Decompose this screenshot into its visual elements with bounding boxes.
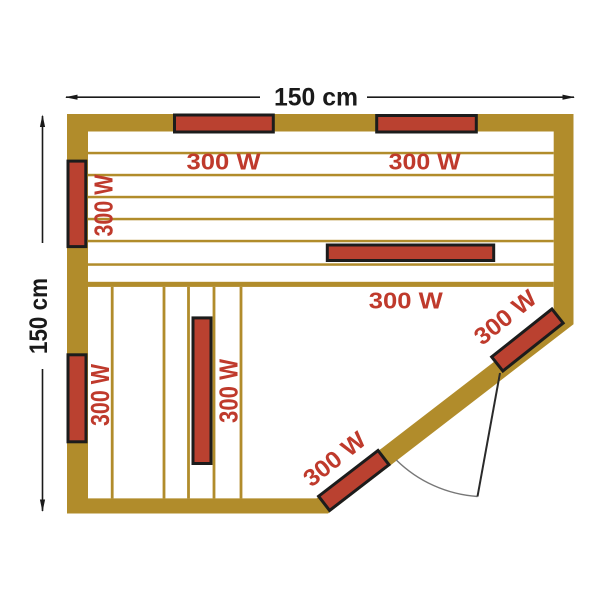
svg-text:300 W: 300 W — [89, 174, 119, 236]
svg-text:300 W: 300 W — [187, 148, 261, 174]
svg-text:150 cm: 150 cm — [274, 84, 358, 112]
svg-text:150 cm: 150 cm — [25, 278, 53, 354]
svg-text:300 W: 300 W — [369, 288, 443, 314]
svg-text:300 W: 300 W — [214, 359, 244, 423]
svg-text:300 W: 300 W — [389, 148, 461, 174]
svg-text:300 W: 300 W — [85, 364, 115, 426]
